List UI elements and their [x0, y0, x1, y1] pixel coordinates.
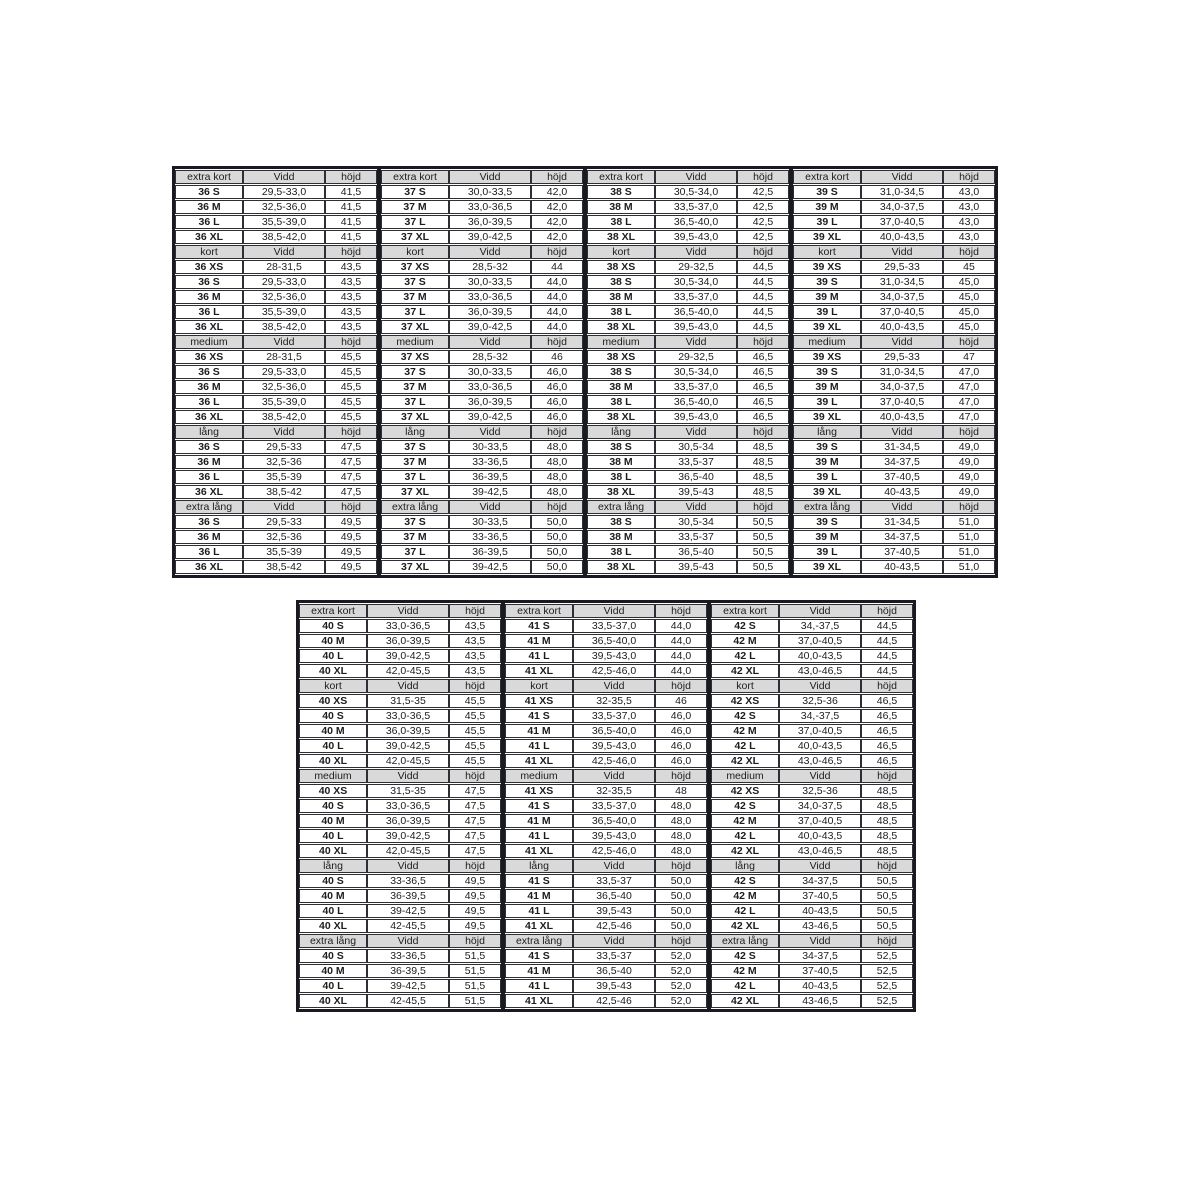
- vidd-value-cell: 42,0-45,5: [367, 844, 449, 858]
- hojd-header-cell: höjd: [531, 335, 583, 349]
- size-row: 42 XL43,0-46,548,5: [711, 844, 913, 858]
- size-label-cell: 39 XL: [793, 485, 861, 499]
- vidd-value-cell: 42,0-45,5: [367, 754, 449, 768]
- section-label-cell: medium: [587, 335, 655, 349]
- vidd-value-cell: 36,5-40: [655, 545, 737, 559]
- size-row: 38 M33,5-37,042,5: [587, 200, 789, 214]
- section-label-cell: kort: [299, 679, 367, 693]
- hojd-value-cell: 52,5: [861, 964, 913, 978]
- size-row: 41 L39,5-43,044,0: [505, 649, 707, 663]
- hojd-value-cell: 50,0: [655, 919, 707, 933]
- size-label-cell: 40 XS: [299, 784, 367, 798]
- section-header-row: mediumViddhöjd: [381, 335, 583, 349]
- size-row: 36 M32,5-36,045,5: [175, 380, 377, 394]
- size-row: 39 XL40-43,549,0: [793, 485, 995, 499]
- size-label-cell: 41 M: [505, 889, 573, 903]
- size-label-cell: 39 M: [793, 380, 861, 394]
- section-label-cell: lång: [793, 425, 861, 439]
- section-header-row: extra långViddhöjd: [381, 500, 583, 514]
- hojd-value-cell: 46,5: [861, 709, 913, 723]
- hojd-value-cell: 46,0: [531, 380, 583, 394]
- vidd-header-cell: Vidd: [449, 335, 531, 349]
- section-header-row: långViddhöjd: [711, 859, 913, 873]
- size-label-cell: 37 S: [381, 275, 449, 289]
- size-label-cell: 38 S: [587, 365, 655, 379]
- size-label-cell: 40 L: [299, 739, 367, 753]
- vidd-value-cell: 39,5-43,0: [655, 230, 737, 244]
- section-header-row: extra kortViddhöjd: [175, 170, 377, 184]
- hojd-value-cell: 44,5: [861, 649, 913, 663]
- vidd-value-cell: 33,0-36,5: [367, 619, 449, 633]
- size-label-cell: 41 XL: [505, 844, 573, 858]
- size-row: 40 XS31,5-3545,5: [299, 694, 501, 708]
- size-row: 38 S30,5-34,044,5: [587, 275, 789, 289]
- size-row: 36 S29,5-3349,5: [175, 515, 377, 529]
- size-label-cell: 42 L: [711, 979, 779, 993]
- hojd-value-cell: 42,0: [531, 200, 583, 214]
- hojd-header-cell: höjd: [861, 679, 913, 693]
- hojd-header-cell: höjd: [943, 500, 995, 514]
- size-row: 41 M36,5-40,048,0: [505, 814, 707, 828]
- vidd-value-cell: 29,5-33: [861, 350, 943, 364]
- section-label-cell: lång: [381, 425, 449, 439]
- size-label-cell: 41 L: [505, 649, 573, 663]
- size-row: 39 XL40,0-43,547,0: [793, 410, 995, 424]
- vidd-value-cell: 28-31,5: [243, 260, 325, 274]
- hojd-value-cell: 47,5: [449, 844, 501, 858]
- size-row: 39 L37-40,549,0: [793, 470, 995, 484]
- size-row: 40 M36,0-39,547,5: [299, 814, 501, 828]
- section-header-row: kortViddhöjd: [505, 679, 707, 693]
- size-table-36-39-group-1: extra kortViddhöjd36 S29,5-33,041,536 M3…: [175, 169, 377, 575]
- vidd-value-cell: 35,5-39: [243, 470, 325, 484]
- size-label-cell: 40 S: [299, 799, 367, 813]
- size-label-cell: 40 M: [299, 964, 367, 978]
- size-row: 42 L40,0-43,544,5: [711, 649, 913, 663]
- hojd-value-cell: 46,0: [655, 754, 707, 768]
- hojd-value-cell: 50,0: [655, 889, 707, 903]
- hojd-value-cell: 47,0: [943, 365, 995, 379]
- size-table-40-42-group-2: extra kortViddhöjd41 S33,5-37,044,041 M3…: [505, 603, 707, 1009]
- vidd-value-cell: 42,5-46,0: [573, 664, 655, 678]
- size-row: 38 M33,5-37,044,5: [587, 290, 789, 304]
- section-label-cell: lång: [175, 425, 243, 439]
- vidd-value-cell: 29,5-33: [243, 440, 325, 454]
- vidd-header-cell: Vidd: [779, 604, 861, 618]
- hojd-value-cell: 51,0: [943, 545, 995, 559]
- size-row: 42 S34,-37,544,5: [711, 619, 913, 633]
- hojd-header-cell: höjd: [943, 425, 995, 439]
- vidd-value-cell: 39,5-43: [655, 485, 737, 499]
- hojd-value-cell: 47: [943, 350, 995, 364]
- size-row: 42 M37,0-40,546,5: [711, 724, 913, 738]
- hojd-value-cell: 47,0: [943, 380, 995, 394]
- hojd-header-cell: höjd: [531, 245, 583, 259]
- size-label-cell: 38 M: [587, 455, 655, 469]
- size-label-cell: 39 M: [793, 290, 861, 304]
- size-row: 41 M36,5-4050,0: [505, 889, 707, 903]
- size-label-cell: 36 S: [175, 185, 243, 199]
- size-row: 36 S29,5-33,041,5: [175, 185, 377, 199]
- vidd-value-cell: 33,5-37: [655, 455, 737, 469]
- vidd-value-cell: 37,0-40,5: [861, 395, 943, 409]
- size-row: 38 S30,5-3448,5: [587, 440, 789, 454]
- vidd-value-cell: 30,0-33,5: [449, 185, 531, 199]
- size-row: 42 XL43-46,550,5: [711, 919, 913, 933]
- size-label-cell: 36 L: [175, 215, 243, 229]
- hojd-value-cell: 41,5: [325, 185, 377, 199]
- vidd-header-cell: Vidd: [449, 170, 531, 184]
- hojd-value-cell: 46,5: [737, 410, 789, 424]
- hojd-value-cell: 43,5: [449, 649, 501, 663]
- vidd-value-cell: 36,5-40,0: [655, 395, 737, 409]
- size-row: 37 M33,0-36,544,0: [381, 290, 583, 304]
- size-row: 42 XL43,0-46,546,5: [711, 754, 913, 768]
- hojd-header-cell: höjd: [655, 604, 707, 618]
- vidd-value-cell: 39,5-43: [573, 979, 655, 993]
- size-row: 38 XL39,5-43,042,5: [587, 230, 789, 244]
- hojd-value-cell: 46,5: [861, 754, 913, 768]
- size-label-cell: 39 XS: [793, 350, 861, 364]
- hojd-value-cell: 50,0: [655, 874, 707, 888]
- vidd-value-cell: 36,5-40,0: [573, 814, 655, 828]
- hojd-value-cell: 47,5: [325, 455, 377, 469]
- vidd-value-cell: 40,0-43,5: [779, 739, 861, 753]
- vidd-value-cell: 40,0-43,5: [861, 410, 943, 424]
- size-row: 42 L40,0-43,546,5: [711, 739, 913, 753]
- size-row: 40 M36-39,549,5: [299, 889, 501, 903]
- vidd-value-cell: 37-40,5: [779, 964, 861, 978]
- hojd-value-cell: 43,5: [449, 664, 501, 678]
- vidd-value-cell: 39,5-43: [573, 904, 655, 918]
- hojd-value-cell: 44,0: [655, 649, 707, 663]
- size-row: 41 L39,5-43,048,0: [505, 829, 707, 843]
- vidd-value-cell: 34-37,5: [779, 949, 861, 963]
- size-label-cell: 38 S: [587, 185, 655, 199]
- size-label-cell: 40 S: [299, 709, 367, 723]
- section-header-row: extra långViddhöjd: [505, 934, 707, 948]
- hojd-header-cell: höjd: [325, 500, 377, 514]
- vidd-value-cell: 29,5-33,0: [243, 185, 325, 199]
- hojd-header-cell: höjd: [737, 500, 789, 514]
- section-header-row: extra långViddhöjd: [711, 934, 913, 948]
- size-label-cell: 41 XL: [505, 919, 573, 933]
- size-label-cell: 42 M: [711, 724, 779, 738]
- vidd-value-cell: 43-46,5: [779, 919, 861, 933]
- hojd-value-cell: 42,5: [737, 215, 789, 229]
- hojd-value-cell: 51,5: [449, 949, 501, 963]
- size-row: 37 XL39,0-42,546,0: [381, 410, 583, 424]
- size-row: 41 XL42,5-4650,0: [505, 919, 707, 933]
- hojd-header-cell: höjd: [531, 425, 583, 439]
- vidd-value-cell: 43-46,5: [779, 994, 861, 1008]
- vidd-value-cell: 33,5-37: [573, 949, 655, 963]
- hojd-value-cell: 48,0: [655, 829, 707, 843]
- size-table-36-39-group-2: extra kortViddhöjd37 S30,0-33,542,037 M3…: [381, 169, 583, 575]
- size-label-cell: 42 L: [711, 904, 779, 918]
- section-header-row: kortViddhöjd: [381, 245, 583, 259]
- size-row: 36 XS28-31,545,5: [175, 350, 377, 364]
- vidd-value-cell: 36,0-39,5: [449, 215, 531, 229]
- hojd-value-cell: 41,5: [325, 230, 377, 244]
- size-row: 40 L39-42,551,5: [299, 979, 501, 993]
- size-label-cell: 42 L: [711, 649, 779, 663]
- size-row: 37 M33,0-36,546,0: [381, 380, 583, 394]
- vidd-value-cell: 38,5-42,0: [243, 320, 325, 334]
- section-label-cell: extra lång: [299, 934, 367, 948]
- hojd-value-cell: 51,0: [943, 530, 995, 544]
- size-chart-page: { "page": { "background": "#ffffff" }, "…: [0, 0, 1200, 1200]
- hojd-header-cell: höjd: [449, 934, 501, 948]
- size-label-cell: 40 XL: [299, 844, 367, 858]
- hojd-value-cell: 49,5: [449, 874, 501, 888]
- size-label-cell: 41 S: [505, 799, 573, 813]
- section-header-row: mediumViddhöjd: [711, 769, 913, 783]
- hojd-value-cell: 52,0: [655, 964, 707, 978]
- size-row: 39 L37-40,551,0: [793, 545, 995, 559]
- vidd-value-cell: 36-39,5: [449, 470, 531, 484]
- size-row: 41 L39,5-43,046,0: [505, 739, 707, 753]
- hojd-value-cell: 51,5: [449, 994, 501, 1008]
- size-row: 38 L36,5-40,046,5: [587, 395, 789, 409]
- size-label-cell: 41 M: [505, 964, 573, 978]
- size-label-cell: 41 M: [505, 724, 573, 738]
- size-row: 42 XS32,5-3646,5: [711, 694, 913, 708]
- size-label-cell: 39 XL: [793, 230, 861, 244]
- hojd-value-cell: 47,5: [325, 470, 377, 484]
- hojd-value-cell: 46: [531, 350, 583, 364]
- size-row: 36 L35,5-3949,5: [175, 545, 377, 559]
- vidd-value-cell: 32,5-36: [243, 455, 325, 469]
- size-label-cell: 41 XL: [505, 994, 573, 1008]
- size-row: 37 S30,0-33,542,0: [381, 185, 583, 199]
- hojd-header-cell: höjd: [737, 425, 789, 439]
- vidd-value-cell: 37-40,5: [861, 545, 943, 559]
- hojd-value-cell: 45,0: [943, 305, 995, 319]
- size-label-cell: 40 S: [299, 619, 367, 633]
- vidd-value-cell: 28,5-32: [449, 260, 531, 274]
- section-label-cell: kort: [505, 679, 573, 693]
- size-row: 40 XL42,0-45,545,5: [299, 754, 501, 768]
- section-label-cell: extra kort: [175, 170, 243, 184]
- vidd-value-cell: 42,5-46: [573, 919, 655, 933]
- vidd-value-cell: 29,5-33: [243, 515, 325, 529]
- size-label-cell: 40 XS: [299, 694, 367, 708]
- size-label-cell: 39 S: [793, 440, 861, 454]
- vidd-value-cell: 31-34,5: [861, 440, 943, 454]
- vidd-value-cell: 42,0-45,5: [367, 664, 449, 678]
- hojd-value-cell: 50,0: [531, 515, 583, 529]
- size-row: 40 M36,0-39,543,5: [299, 634, 501, 648]
- size-label-cell: 37 S: [381, 515, 449, 529]
- vidd-value-cell: 32,5-36,0: [243, 380, 325, 394]
- vidd-value-cell: 33,0-36,5: [449, 290, 531, 304]
- hojd-value-cell: 44: [531, 260, 583, 274]
- size-label-cell: 38 XS: [587, 350, 655, 364]
- vidd-value-cell: 30,5-34: [655, 440, 737, 454]
- size-row: 38 S30,5-3450,5: [587, 515, 789, 529]
- size-row: 40 M36,0-39,545,5: [299, 724, 501, 738]
- vidd-value-cell: 39,5-43,0: [655, 320, 737, 334]
- size-row: 37 XS28,5-3244: [381, 260, 583, 274]
- hojd-value-cell: 47,5: [449, 829, 501, 843]
- section-label-cell: extra kort: [299, 604, 367, 618]
- size-label-cell: 36 M: [175, 200, 243, 214]
- vidd-value-cell: 42,5-46,0: [573, 844, 655, 858]
- section-header-row: långViddhöjd: [587, 425, 789, 439]
- hojd-value-cell: 45,0: [943, 275, 995, 289]
- vidd-header-cell: Vidd: [449, 500, 531, 514]
- vidd-value-cell: 39-42,5: [449, 485, 531, 499]
- vidd-value-cell: 37,0-40,5: [861, 215, 943, 229]
- vidd-value-cell: 28,5-32: [449, 350, 531, 364]
- vidd-header-cell: Vidd: [779, 859, 861, 873]
- section-header-row: långViddhöjd: [175, 425, 377, 439]
- hojd-value-cell: 47,5: [449, 799, 501, 813]
- size-row: 37 L36-39,550,0: [381, 545, 583, 559]
- vidd-value-cell: 33-36,5: [449, 455, 531, 469]
- hojd-value-cell: 48,5: [737, 485, 789, 499]
- size-row: 38 S30,5-34,046,5: [587, 365, 789, 379]
- size-label-cell: 40 S: [299, 874, 367, 888]
- size-row: 39 S31-34,549,0: [793, 440, 995, 454]
- size-label-cell: 36 M: [175, 530, 243, 544]
- section-label-cell: medium: [505, 769, 573, 783]
- vidd-value-cell: 39,5-43,0: [655, 410, 737, 424]
- size-label-cell: 38 XS: [587, 260, 655, 274]
- vidd-value-cell: 39,0-42,5: [449, 410, 531, 424]
- hojd-value-cell: 51,0: [943, 560, 995, 574]
- hojd-value-cell: 48,5: [861, 784, 913, 798]
- hojd-value-cell: 48,0: [655, 814, 707, 828]
- hojd-value-cell: 52,5: [861, 994, 913, 1008]
- vidd-value-cell: 33,0-36,5: [449, 200, 531, 214]
- size-row: 37 L36-39,548,0: [381, 470, 583, 484]
- vidd-header-cell: Vidd: [367, 934, 449, 948]
- hojd-value-cell: 50,5: [737, 545, 789, 559]
- hojd-value-cell: 45: [943, 260, 995, 274]
- section-label-cell: extra kort: [381, 170, 449, 184]
- size-label-cell: 39 S: [793, 515, 861, 529]
- vidd-value-cell: 39,0-42,5: [367, 829, 449, 843]
- size-label-cell: 40 M: [299, 889, 367, 903]
- vidd-value-cell: 30-33,5: [449, 440, 531, 454]
- size-row: 38 XL39,5-43,044,5: [587, 320, 789, 334]
- hojd-value-cell: 50,5: [737, 515, 789, 529]
- size-label-cell: 41 XL: [505, 754, 573, 768]
- hojd-value-cell: 52,5: [861, 949, 913, 963]
- vidd-header-cell: Vidd: [655, 500, 737, 514]
- vidd-value-cell: 31,0-34,5: [861, 185, 943, 199]
- size-row: 39 M34,0-37,543,0: [793, 200, 995, 214]
- size-label-cell: 39 M: [793, 455, 861, 469]
- size-label-cell: 42 L: [711, 739, 779, 753]
- size-label-cell: 38 M: [587, 380, 655, 394]
- hojd-value-cell: 48,0: [531, 470, 583, 484]
- vidd-header-cell: Vidd: [655, 425, 737, 439]
- size-label-cell: 38 L: [587, 305, 655, 319]
- size-label-cell: 37 XL: [381, 485, 449, 499]
- size-label-cell: 38 M: [587, 530, 655, 544]
- hojd-value-cell: 43,5: [325, 275, 377, 289]
- size-label-cell: 36 M: [175, 380, 243, 394]
- size-row: 38 S30,5-34,042,5: [587, 185, 789, 199]
- hojd-value-cell: 46,5: [861, 739, 913, 753]
- hojd-value-cell: 48,0: [531, 485, 583, 499]
- section-header-row: kortViddhöjd: [793, 245, 995, 259]
- size-label-cell: 40 XL: [299, 754, 367, 768]
- vidd-value-cell: 42-45,5: [367, 919, 449, 933]
- hojd-value-cell: 42,5: [737, 185, 789, 199]
- vidd-value-cell: 36,0-39,5: [449, 395, 531, 409]
- vidd-value-cell: 39,0-42,5: [449, 230, 531, 244]
- size-row: 39 M34-37,551,0: [793, 530, 995, 544]
- size-row: 37 XL39-42,550,0: [381, 560, 583, 574]
- size-row: 41 XL42,5-4652,0: [505, 994, 707, 1008]
- hojd-value-cell: 44,5: [737, 305, 789, 319]
- vidd-value-cell: 29,5-33,0: [243, 275, 325, 289]
- section-header-row: mediumViddhöjd: [793, 335, 995, 349]
- size-row: 38 M33,5-37,046,5: [587, 380, 789, 394]
- hojd-value-cell: 43,5: [325, 305, 377, 319]
- section-header-row: extra långViddhöjd: [175, 500, 377, 514]
- size-row: 42 S34-37,550,5: [711, 874, 913, 888]
- size-row: 39 S31,0-34,545,0: [793, 275, 995, 289]
- vidd-value-cell: 34,0-37,5: [861, 380, 943, 394]
- vidd-value-cell: 33-36,5: [367, 874, 449, 888]
- hojd-value-cell: 52,5: [861, 979, 913, 993]
- hojd-value-cell: 46,5: [737, 350, 789, 364]
- vidd-header-cell: Vidd: [779, 769, 861, 783]
- section-header-row: extra kortViddhöjd: [711, 604, 913, 618]
- size-label-cell: 36 M: [175, 290, 243, 304]
- hojd-value-cell: 44,0: [655, 664, 707, 678]
- vidd-header-cell: Vidd: [779, 934, 861, 948]
- vidd-value-cell: 40,0-43,5: [861, 230, 943, 244]
- vidd-header-cell: Vidd: [655, 245, 737, 259]
- size-row: 37 XS28,5-3246: [381, 350, 583, 364]
- vidd-value-cell: 33,0-36,5: [367, 799, 449, 813]
- size-label-cell: 39 XL: [793, 410, 861, 424]
- vidd-value-cell: 33,5-37: [655, 530, 737, 544]
- vidd-value-cell: 39,0-42,5: [367, 739, 449, 753]
- vidd-value-cell: 39,0-42,5: [449, 320, 531, 334]
- section-label-cell: extra kort: [587, 170, 655, 184]
- size-row: 36 XL38,5-42,043,5: [175, 320, 377, 334]
- vidd-value-cell: 29,5-33: [861, 260, 943, 274]
- vidd-header-cell: Vidd: [573, 859, 655, 873]
- vidd-value-cell: 28-31,5: [243, 350, 325, 364]
- vidd-value-cell: 34,-37,5: [779, 709, 861, 723]
- hojd-value-cell: 48,5: [737, 470, 789, 484]
- hojd-header-cell: höjd: [943, 245, 995, 259]
- size-label-cell: 36 XL: [175, 410, 243, 424]
- size-row: 39 XL40,0-43,543,0: [793, 230, 995, 244]
- hojd-header-cell: höjd: [943, 170, 995, 184]
- size-row: 40 XL42,0-45,543,5: [299, 664, 501, 678]
- size-row: 36 S29,5-33,045,5: [175, 365, 377, 379]
- vidd-header-cell: Vidd: [655, 335, 737, 349]
- section-header-row: mediumViddhöjd: [175, 335, 377, 349]
- size-row: 40 L39,0-42,543,5: [299, 649, 501, 663]
- hojd-header-cell: höjd: [449, 769, 501, 783]
- vidd-value-cell: 31,5-35: [367, 694, 449, 708]
- hojd-value-cell: 46,0: [531, 395, 583, 409]
- size-label-cell: 36 XL: [175, 230, 243, 244]
- section-label-cell: extra lång: [381, 500, 449, 514]
- hojd-value-cell: 48: [655, 784, 707, 798]
- section-header-row: extra kortViddhöjd: [505, 604, 707, 618]
